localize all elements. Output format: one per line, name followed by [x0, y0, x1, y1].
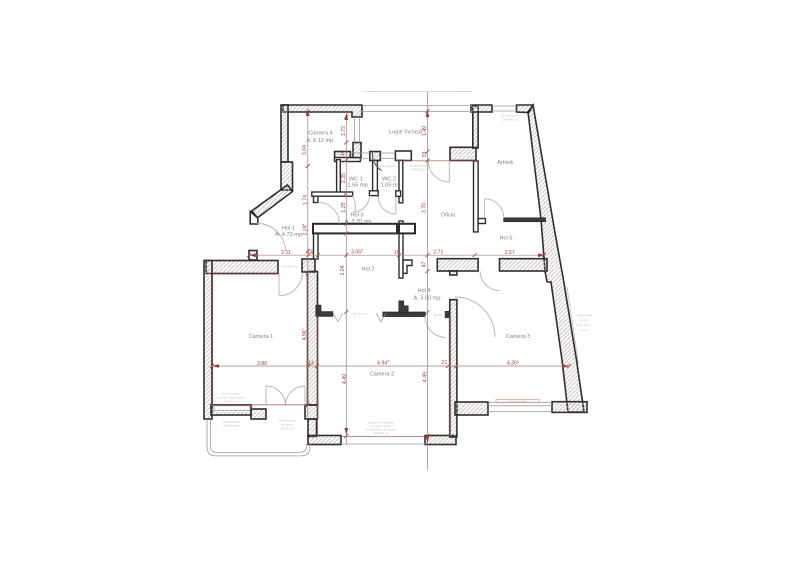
- svg-text:Oficiu: Oficiu: [441, 213, 455, 219]
- svg-text:1.74: 1.74: [302, 195, 308, 205]
- svg-text:gol 16: gol 16: [434, 313, 443, 317]
- svg-text:10: 10: [340, 150, 346, 156]
- svg-text:Hol 2: Hol 2: [361, 267, 374, 273]
- svg-text:120/140 cm: 120/140 cm: [502, 118, 518, 122]
- svg-text:cu termopan: cu termopan: [223, 424, 240, 428]
- svg-text:1.55 mp: 1.55 mp: [347, 182, 367, 188]
- svg-text:120/140 cm: 120/140 cm: [223, 400, 239, 404]
- svg-text:tencuit: tencuit: [580, 328, 589, 332]
- svg-text:2.25: 2.25: [341, 173, 347, 183]
- svg-text:4.49: 4.49: [342, 374, 348, 384]
- svg-text:1.72: 1.72: [341, 126, 347, 136]
- svg-text:1.05 m: 1.05 m: [380, 182, 397, 188]
- svg-text:A: 3.70 mp: A: 3.70 mp: [344, 219, 371, 225]
- svg-text:Hol 3: Hol 3: [350, 213, 363, 219]
- svg-text:gol H=2 m: gol H=2 m: [353, 312, 367, 316]
- svg-text:Hol 1: Hol 1: [282, 226, 295, 232]
- svg-text:A: 6.12 mp.: A: 6.12 mp.: [306, 138, 335, 144]
- svg-text:3.04: 3.04: [302, 145, 308, 155]
- svg-text:Logie închisă: Logie închisă: [389, 130, 423, 136]
- svg-text:47: 47: [422, 262, 428, 268]
- svg-text:14: 14: [307, 250, 313, 256]
- svg-text:Arhivă: Arhivă: [497, 160, 514, 166]
- svg-text:BCA 30 cm: BCA 30 cm: [576, 323, 592, 327]
- svg-text:1.25: 1.25: [341, 202, 347, 212]
- svg-text:Hol 5: Hol 5: [499, 236, 512, 242]
- svg-text:A: 4.73 mp: A: 4.73 mp: [275, 232, 302, 238]
- svg-text:340/240 cm: 340/240 cm: [373, 431, 389, 435]
- svg-text:Camera 2: Camera 2: [370, 372, 395, 378]
- svg-text:Camera 4: Camera 4: [308, 130, 333, 136]
- svg-text:80/120 cm: 80/120 cm: [412, 168, 427, 172]
- svg-text:16: 16: [394, 250, 400, 256]
- svg-text:4.49: 4.49: [423, 372, 429, 382]
- svg-text:21: 21: [442, 360, 448, 366]
- svg-text:perete exist.: perete exist.: [577, 313, 594, 317]
- svg-text:usa H=2.1 m: usa H=2.1 m: [282, 265, 300, 269]
- svg-text:A: 3.50 mp: A: 3.50 mp: [413, 296, 440, 302]
- svg-text:3.80: 3.80: [257, 361, 267, 367]
- svg-text:2.71: 2.71: [433, 250, 443, 256]
- svg-text:3.04: 3.04: [340, 265, 346, 275]
- svg-text:2.11: 2.11: [281, 250, 291, 256]
- svg-text:fer. termopan: fer. termopan: [509, 399, 527, 403]
- svg-text:Camera 1: Camera 1: [249, 334, 274, 340]
- svg-text:din car.: din car.: [579, 318, 589, 322]
- svg-text:3.70: 3.70: [422, 203, 428, 213]
- svg-text:instal. sanitare: instal. sanitare: [377, 164, 397, 168]
- svg-text:90/240 cm: 90/240 cm: [280, 427, 295, 431]
- svg-text:33: 33: [422, 152, 428, 158]
- svg-text:2.57: 2.57: [505, 250, 515, 256]
- svg-text:Hol 4: Hol 4: [417, 288, 430, 294]
- svg-text:Camera 3: Camera 3: [506, 334, 531, 340]
- svg-text:14: 14: [308, 361, 314, 367]
- svg-text:1.49: 1.49: [422, 126, 428, 136]
